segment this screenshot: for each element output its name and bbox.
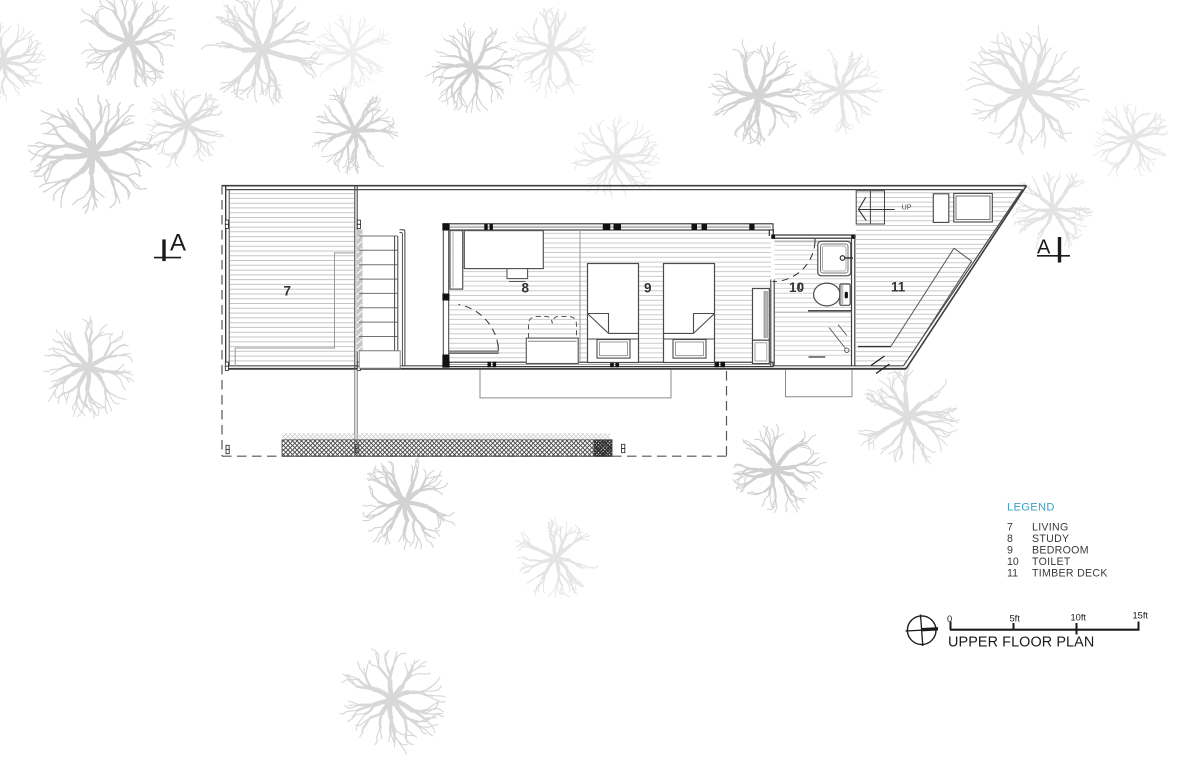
svg-text:10ft: 10ft [1071,613,1087,623]
svg-text:10: 10 [789,280,804,295]
svg-text:UP: UP [902,203,912,212]
svg-text:11: 11 [891,280,906,295]
svg-text:LEGEND: LEGEND [1007,502,1055,514]
svg-text:9: 9 [1007,544,1013,556]
svg-text:TOILET: TOILET [1032,556,1071,568]
svg-text:5ft: 5ft [1010,614,1021,624]
svg-text:BEDROOM: BEDROOM [1032,544,1089,556]
svg-text:7: 7 [284,284,292,299]
svg-text:8: 8 [522,281,530,296]
svg-text:15ft: 15ft [1133,611,1149,621]
svg-text:LIVING: LIVING [1032,522,1069,534]
svg-text:9: 9 [644,281,652,296]
svg-text:11: 11 [1007,567,1018,579]
svg-text:STUDY: STUDY [1032,533,1069,545]
svg-text:0: 0 [947,614,952,624]
svg-text:A: A [170,230,186,257]
svg-text:8: 8 [1007,533,1013,545]
svg-text:10: 10 [1007,556,1019,568]
svg-text:7: 7 [1007,522,1013,534]
svg-text:UPPER FLOOR PLAN: UPPER FLOOR PLAN [948,635,1094,651]
svg-text:TIMBER DECK: TIMBER DECK [1032,567,1108,579]
